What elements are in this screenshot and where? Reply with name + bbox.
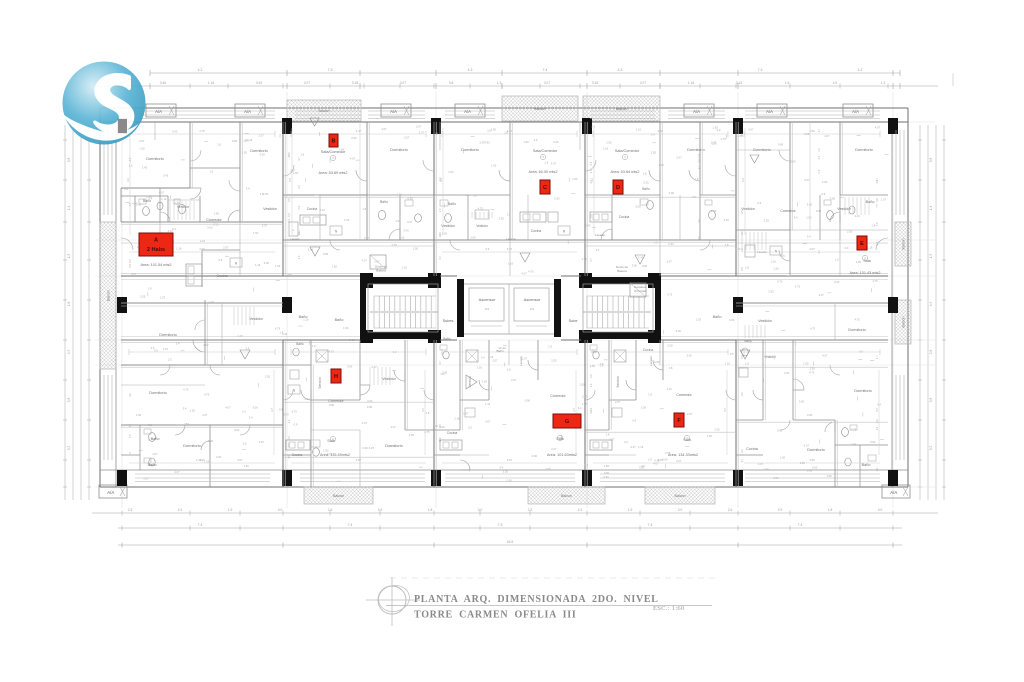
svg-text:2.07: 2.07: [522, 357, 528, 361]
svg-text:2.5: 2.5: [260, 192, 264, 196]
svg-text:2.07: 2.07: [615, 400, 621, 404]
svg-text:1.9: 1.9: [628, 508, 633, 512]
svg-text:Lavado: Lavado: [595, 233, 605, 237]
svg-text:0.90: 0.90: [777, 429, 783, 433]
svg-text:2.55: 2.55: [395, 219, 401, 223]
svg-text:Baño: Baño: [148, 463, 157, 467]
svg-text:7.4: 7.4: [348, 523, 353, 527]
svg-text:3.00: 3.00: [433, 424, 439, 428]
svg-text:1.8: 1.8: [428, 508, 433, 512]
svg-text:0.9: 0.9: [697, 159, 701, 163]
svg-text:A/A: A/A: [852, 109, 859, 114]
svg-text:4.75: 4.75: [851, 427, 857, 431]
svg-text:1.8: 1.8: [148, 287, 152, 291]
svg-text:3.0: 3.0: [740, 133, 744, 137]
svg-text:G: G: [565, 419, 569, 425]
svg-text:4.7: 4.7: [817, 128, 821, 132]
svg-text:4.07: 4.07: [381, 127, 387, 131]
svg-text:4.07: 4.07: [653, 462, 659, 466]
svg-text:2 Habs: 2 Habs: [147, 247, 165, 253]
svg-text:1.5: 1.5: [67, 254, 71, 259]
svg-text:4.7: 4.7: [438, 360, 442, 364]
svg-text:2.07: 2.07: [374, 259, 380, 263]
svg-text:2.55: 2.55: [847, 230, 853, 234]
svg-text:0.9: 0.9: [757, 201, 761, 205]
svg-text:3.0: 3.0: [740, 449, 744, 453]
svg-text:4.75: 4.75: [329, 350, 335, 354]
svg-text:2.55: 2.55: [800, 461, 806, 465]
svg-text:1.50: 1.50: [641, 405, 647, 409]
svg-text:2.55: 2.55: [804, 132, 810, 136]
svg-text:3.00: 3.00: [367, 405, 373, 409]
svg-text:4.07: 4.07: [362, 258, 368, 262]
svg-text:4.7: 4.7: [287, 153, 291, 157]
svg-text:1.16: 1.16: [176, 246, 182, 250]
svg-text:3.43: 3.43: [259, 440, 265, 444]
svg-text:1.50: 1.50: [582, 257, 588, 261]
svg-text:2.55: 2.55: [482, 379, 488, 383]
svg-text:1.8: 1.8: [507, 213, 511, 217]
svg-text:2.55: 2.55: [665, 451, 671, 455]
svg-text:0.9: 0.9: [589, 214, 593, 218]
svg-text:4.75: 4.75: [275, 327, 281, 331]
svg-text:Dormitorio: Dormitorio: [149, 391, 167, 395]
svg-text:4.07: 4.07: [822, 353, 828, 357]
svg-text:Cocina: Cocina: [216, 274, 227, 278]
svg-text:Cocina: Cocina: [307, 207, 318, 211]
svg-text:2.55: 2.55: [551, 358, 557, 362]
svg-text:3.00: 3.00: [642, 264, 648, 268]
svg-text:1.16: 1.16: [485, 402, 491, 406]
svg-text:A/A: A/A: [155, 109, 162, 114]
svg-text:3.4: 3.4: [183, 407, 187, 411]
svg-text:Area: 60.00 mts2: Area: 60.00 mts2: [529, 170, 558, 174]
svg-text:A/A: A/A: [890, 490, 897, 495]
svg-text:3.4: 3.4: [481, 355, 485, 359]
svg-text:4.07: 4.07: [804, 443, 810, 447]
svg-text:2.07: 2.07: [463, 411, 469, 415]
svg-text:2.5: 2.5: [151, 346, 155, 350]
svg-text:2.07: 2.07: [631, 445, 637, 449]
svg-text:4.07: 4.07: [407, 220, 413, 224]
svg-text:2.0: 2.0: [697, 236, 701, 240]
svg-text:4.75: 4.75: [478, 206, 484, 210]
svg-text:1.4: 1.4: [67, 206, 71, 211]
svg-text:Vestidor: Vestidor: [382, 377, 396, 381]
svg-text:0.9: 0.9: [154, 349, 158, 353]
svg-text:2.55: 2.55: [409, 433, 415, 437]
svg-text:3.4: 3.4: [499, 466, 503, 470]
svg-text:1.50: 1.50: [780, 456, 786, 460]
svg-text:H: H: [334, 374, 338, 380]
svg-text:2.5: 2.5: [528, 508, 533, 512]
svg-text:PLANTA ARQ. DIMENSIONADA 2DO.: PLANTA ARQ. DIMENSIONADA 2DO. NIVEL: [414, 594, 659, 605]
svg-text:3.0: 3.0: [438, 177, 442, 181]
svg-text:1.5: 1.5: [875, 426, 879, 430]
svg-text:0.9: 0.9: [641, 464, 645, 468]
svg-text:4.07: 4.07: [824, 134, 830, 138]
svg-text:3.43: 3.43: [282, 332, 288, 336]
svg-text:3.00: 3.00: [729, 318, 735, 322]
svg-text:0.90: 0.90: [870, 440, 876, 444]
svg-text:7.4: 7.4: [648, 523, 653, 527]
svg-text:3.0: 3.0: [697, 219, 701, 223]
svg-text:1.16: 1.16: [255, 263, 261, 267]
svg-text:Baño: Baño: [296, 342, 304, 346]
svg-text:3.43: 3.43: [339, 147, 345, 151]
svg-text:1.16: 1.16: [208, 81, 214, 85]
svg-text:1.50: 1.50: [856, 260, 862, 264]
svg-text:0.9: 0.9: [589, 161, 593, 165]
svg-text:4.2: 4.2: [198, 68, 203, 72]
svg-text:3.00: 3.00: [349, 338, 355, 342]
svg-text:Ascensor: Ascensor: [479, 297, 496, 302]
svg-text:E: E: [860, 241, 864, 247]
svg-text:Baño: Baño: [443, 337, 451, 341]
svg-text:1.5: 1.5: [128, 451, 132, 455]
svg-text:1.50: 1.50: [707, 434, 713, 438]
svg-text:2.55: 2.55: [498, 216, 504, 220]
svg-text:1.50: 1.50: [773, 267, 779, 271]
svg-text:0.9: 0.9: [740, 267, 744, 271]
svg-text:Baño: Baño: [335, 318, 344, 322]
svg-text:2.6: 2.6: [328, 508, 333, 512]
svg-text:4.7: 4.7: [270, 408, 274, 412]
svg-text:7.4: 7.4: [798, 523, 803, 527]
svg-text:0.9: 0.9: [297, 205, 301, 209]
svg-text:Area: 101.43 mts2: Area: 101.43 mts2: [849, 271, 880, 275]
svg-text:2.07: 2.07: [416, 125, 422, 129]
svg-text:3.07: 3.07: [400, 81, 406, 85]
svg-text:3.00: 3.00: [470, 236, 476, 240]
svg-text:3.43: 3.43: [142, 166, 148, 170]
svg-text:Dormitorio: Dormitorio: [855, 148, 873, 152]
svg-text:Balcon: Balcon: [902, 317, 906, 328]
svg-text:1.16: 1.16: [399, 236, 405, 240]
svg-text:0.9: 0.9: [717, 128, 721, 132]
svg-text:2.07: 2.07: [174, 470, 180, 474]
svg-text:A/A: A/A: [464, 109, 471, 114]
svg-text:2.5: 2.5: [468, 426, 472, 430]
svg-text:Dormitorio: Dormitorio: [390, 148, 408, 152]
svg-text:2.0: 2.0: [297, 184, 301, 188]
svg-text:4.7: 4.7: [589, 179, 593, 183]
svg-text:1.8: 1.8: [548, 345, 552, 349]
svg-text:4.75: 4.75: [777, 280, 783, 284]
svg-text:1.8: 1.8: [129, 163, 133, 167]
svg-text:1.8: 1.8: [312, 344, 316, 348]
svg-text:9.8: 9.8: [67, 398, 71, 403]
svg-text:Sala/Comedor: Sala/Comedor: [533, 149, 558, 153]
svg-text:Basura: Basura: [617, 269, 627, 273]
svg-text:4.07: 4.07: [369, 446, 375, 450]
svg-text:1.50: 1.50: [604, 464, 610, 468]
svg-text:3.8: 3.8: [929, 158, 933, 163]
svg-text:1.4: 1.4: [929, 206, 933, 211]
svg-text:B: B: [332, 139, 336, 145]
svg-text:Area: 53.64 mts2: Area: 53.64 mts2: [611, 170, 640, 174]
svg-text:3.0: 3.0: [278, 508, 283, 512]
svg-text:4.07: 4.07: [485, 420, 491, 424]
svg-text:4.75: 4.75: [183, 388, 189, 392]
svg-text:0.90: 0.90: [329, 403, 335, 407]
svg-text:0.90: 0.90: [807, 413, 813, 417]
svg-text:0.9: 0.9: [781, 254, 785, 258]
svg-text:3.00: 3.00: [784, 371, 790, 375]
svg-text:3.00: 3.00: [264, 261, 270, 265]
svg-text:Area: 134.33mts2: Area: 134.33mts2: [668, 453, 698, 457]
svg-text:3.4: 3.4: [149, 196, 153, 200]
svg-text:ESC.: 1:60: ESC.: 1:60: [653, 605, 685, 612]
svg-text:Baño: Baño: [448, 202, 456, 206]
svg-text:1.50: 1.50: [491, 164, 497, 168]
svg-text:Sube: Sube: [569, 319, 578, 323]
svg-text:4.07: 4.07: [521, 271, 527, 275]
svg-text:3.4: 3.4: [624, 440, 628, 444]
svg-text:1.50: 1.50: [275, 264, 281, 268]
svg-text:3.4: 3.4: [578, 406, 582, 410]
svg-text:3.00: 3.00: [799, 400, 805, 404]
svg-text:A/A: A/A: [107, 490, 114, 495]
svg-text:1.8: 1.8: [545, 160, 549, 164]
svg-text:2.55: 2.55: [651, 150, 657, 154]
svg-text:TORRE CARMEN OFELIA III: TORRE CARMEN OFELIA III: [414, 610, 576, 621]
svg-text:Sala/Comedor: Sala/Comedor: [615, 149, 640, 153]
svg-text:4.07: 4.07: [362, 421, 368, 425]
svg-text:0.90: 0.90: [234, 428, 240, 432]
svg-text:9.8: 9.8: [929, 398, 933, 403]
svg-text:4.9: 4.9: [67, 350, 71, 355]
svg-text:4.75: 4.75: [292, 410, 298, 414]
svg-text:1.16: 1.16: [454, 417, 460, 421]
svg-text:Subes: Subes: [443, 319, 454, 323]
svg-text:1.50: 1.50: [413, 247, 419, 251]
svg-text:1.50: 1.50: [590, 364, 596, 368]
svg-text:1.8: 1.8: [209, 169, 213, 173]
svg-text:1.16: 1.16: [397, 193, 403, 197]
svg-text:2.55: 2.55: [768, 290, 774, 294]
svg-text:4.07: 4.07: [304, 397, 310, 401]
svg-text:Baño: Baño: [642, 187, 650, 191]
svg-text:1.50: 1.50: [184, 422, 190, 426]
svg-text:4.7: 4.7: [817, 249, 821, 253]
svg-text:2.55: 2.55: [764, 467, 770, 471]
svg-text:4.7: 4.7: [723, 408, 727, 412]
svg-text:1.50: 1.50: [826, 474, 832, 478]
svg-text:3.00: 3.00: [260, 152, 266, 156]
svg-text:2.55: 2.55: [643, 180, 649, 184]
svg-text:3.43: 3.43: [403, 229, 409, 233]
svg-text:3.43: 3.43: [736, 81, 742, 85]
svg-text:1.16: 1.16: [402, 265, 408, 269]
svg-text:0.90: 0.90: [554, 197, 560, 201]
svg-text:4.75: 4.75: [424, 430, 430, 434]
svg-text:Baño: Baño: [151, 437, 160, 441]
svg-text:1.50: 1.50: [332, 265, 338, 269]
svg-text:3.00: 3.00: [442, 231, 448, 235]
svg-text:2.5: 2.5: [148, 423, 152, 427]
svg-text:1.5: 1.5: [128, 202, 132, 206]
svg-text:1.16: 1.16: [477, 365, 483, 369]
svg-text:0.90: 0.90: [816, 209, 822, 213]
svg-text:Vestidor: Vestidor: [758, 319, 772, 323]
svg-text:Dormitorio: Dormitorio: [807, 448, 825, 452]
svg-text:4.7: 4.7: [697, 165, 701, 169]
svg-text:2.55: 2.55: [190, 408, 196, 412]
svg-text:3.07: 3.07: [544, 81, 550, 85]
svg-text:3.4: 3.4: [595, 248, 599, 252]
svg-text:1.16: 1.16: [303, 318, 309, 322]
svg-text:2.07: 2.07: [609, 437, 615, 441]
svg-text:1.16: 1.16: [488, 355, 494, 359]
svg-text:3.00: 3.00: [790, 159, 796, 163]
svg-text:0.90: 0.90: [323, 252, 329, 256]
svg-text:1.8: 1.8: [301, 153, 305, 157]
svg-text:3.0: 3.0: [128, 393, 132, 397]
svg-text:Dormitorio: Dormitorio: [848, 328, 866, 332]
svg-text:1.8: 1.8: [426, 411, 430, 415]
svg-text:1.3: 1.3: [881, 81, 886, 85]
svg-text:Lavado: Lavado: [290, 237, 300, 241]
svg-text:3.8: 3.8: [67, 158, 71, 163]
svg-text:2.6: 2.6: [728, 508, 733, 512]
svg-text:1.50: 1.50: [523, 140, 529, 144]
svg-text:2.07: 2.07: [551, 447, 557, 451]
svg-text:3.0: 3.0: [589, 374, 593, 378]
svg-text:0.9: 0.9: [845, 246, 849, 250]
svg-text:1.50: 1.50: [822, 180, 828, 184]
svg-text:Vestidor: Vestidor: [249, 317, 263, 321]
svg-text:0.90: 0.90: [669, 191, 675, 195]
svg-text:Area: 101.54 mts2: Area: 101.54 mts2: [140, 263, 171, 267]
svg-text:3.0: 3.0: [297, 231, 301, 235]
svg-text:2.07: 2.07: [419, 130, 425, 134]
svg-text:4.07: 4.07: [131, 272, 137, 276]
svg-text:1.8: 1.8: [745, 361, 749, 365]
svg-text:4.07: 4.07: [199, 247, 205, 251]
svg-text:4.75: 4.75: [810, 326, 816, 330]
svg-text:1.6: 1.6: [67, 302, 71, 307]
svg-text:4.3: 4.3: [578, 508, 583, 512]
svg-text:4.3: 4.3: [468, 68, 473, 72]
svg-text:0.90: 0.90: [668, 242, 674, 246]
svg-text:4.07: 4.07: [819, 293, 825, 297]
svg-text:0.90: 0.90: [507, 478, 513, 482]
svg-text:4.75: 4.75: [528, 269, 534, 273]
svg-text:4.07: 4.07: [152, 452, 158, 456]
svg-text:7.3: 7.3: [758, 68, 763, 72]
svg-text:2.5: 2.5: [243, 441, 247, 445]
svg-text:0.9: 0.9: [589, 407, 593, 411]
svg-text:0.9: 0.9: [530, 307, 535, 311]
svg-text:2.55: 2.55: [263, 192, 269, 196]
svg-text:Baño: Baño: [496, 349, 503, 353]
svg-text:0.9: 0.9: [632, 418, 636, 422]
svg-text:4.9: 4.9: [929, 302, 933, 307]
svg-text:C: C: [543, 185, 547, 191]
svg-text:Cocina: Cocina: [531, 229, 542, 233]
svg-text:0.90: 0.90: [347, 364, 353, 368]
svg-text:3.9: 3.9: [378, 508, 383, 512]
svg-text:1.16: 1.16: [636, 127, 642, 131]
svg-text:2.07: 2.07: [667, 260, 673, 264]
svg-text:4.3: 4.3: [178, 508, 183, 512]
svg-text:3.00: 3.00: [667, 344, 673, 348]
svg-text:1.8: 1.8: [584, 463, 588, 467]
svg-text:4.47: 4.47: [658, 129, 664, 133]
svg-text:0.90: 0.90: [778, 143, 784, 147]
svg-text:2.5: 2.5: [730, 352, 734, 356]
svg-text:1.8: 1.8: [473, 193, 477, 197]
svg-text:1.50: 1.50: [579, 382, 585, 386]
svg-text:0.90: 0.90: [591, 350, 597, 354]
svg-text:A: A: [154, 238, 158, 244]
svg-text:3.00: 3.00: [830, 196, 836, 200]
svg-text:4.07: 4.07: [440, 372, 446, 376]
svg-text:0.9: 0.9: [821, 192, 825, 196]
svg-text:2.07: 2.07: [160, 295, 166, 299]
svg-text:1.9: 1.9: [228, 508, 233, 512]
svg-text:1.16: 1.16: [711, 209, 717, 213]
svg-text:3.4: 3.4: [176, 342, 180, 346]
svg-text:4.7: 4.7: [589, 258, 593, 262]
svg-text:4.75: 4.75: [809, 371, 815, 375]
svg-text:3.00: 3.00: [687, 354, 693, 358]
svg-text:0.90: 0.90: [363, 446, 369, 450]
svg-text:2.55: 2.55: [140, 295, 146, 299]
svg-text:2.55: 2.55: [572, 177, 578, 181]
svg-text:Balcon: Balcon: [616, 107, 627, 111]
svg-text:1.8: 1.8: [362, 207, 366, 211]
svg-text:0.90: 0.90: [525, 399, 531, 403]
svg-text:3.67: 3.67: [507, 458, 513, 462]
svg-text:0.9: 0.9: [391, 444, 395, 448]
svg-text:4.07: 4.07: [350, 156, 356, 160]
svg-text:2.5: 2.5: [128, 508, 133, 512]
svg-text:3.4: 3.4: [249, 415, 253, 419]
svg-text:0.9: 0.9: [294, 423, 298, 427]
svg-text:Balcon: Balcon: [535, 107, 546, 111]
svg-text:1.50: 1.50: [136, 413, 142, 417]
svg-text:0.9: 0.9: [875, 198, 879, 202]
svg-text:2.55: 2.55: [545, 467, 551, 471]
svg-text:1.16: 1.16: [196, 458, 202, 462]
svg-text:1.50: 1.50: [253, 231, 259, 235]
svg-text:Lavado: Lavado: [506, 237, 516, 241]
svg-text:0.9: 0.9: [485, 307, 490, 311]
svg-text:7.4: 7.4: [543, 68, 548, 72]
svg-text:Comedor: Comedor: [780, 209, 796, 213]
svg-text:Servicio: Servicio: [616, 376, 620, 388]
svg-text:3.00: 3.00: [635, 204, 641, 208]
svg-text:3.0: 3.0: [128, 259, 132, 263]
svg-text:Balcon: Balcon: [333, 494, 344, 498]
svg-text:0.90: 0.90: [232, 139, 238, 143]
svg-text:D: D: [616, 185, 620, 191]
svg-text:2.07: 2.07: [372, 365, 378, 369]
svg-text:0.9: 0.9: [279, 408, 283, 412]
svg-text:0.9: 0.9: [485, 247, 489, 251]
svg-text:2.55: 2.55: [764, 219, 770, 223]
svg-text:4.3: 4.3: [618, 68, 623, 72]
svg-text:2.07: 2.07: [804, 178, 810, 182]
svg-text:1.8: 1.8: [243, 138, 247, 142]
svg-text:44.9: 44.9: [507, 540, 514, 544]
svg-text:2.55: 2.55: [696, 317, 702, 321]
svg-text:2.07: 2.07: [391, 425, 397, 429]
svg-text:2.55: 2.55: [503, 469, 509, 473]
svg-text:1.50: 1.50: [803, 361, 809, 365]
